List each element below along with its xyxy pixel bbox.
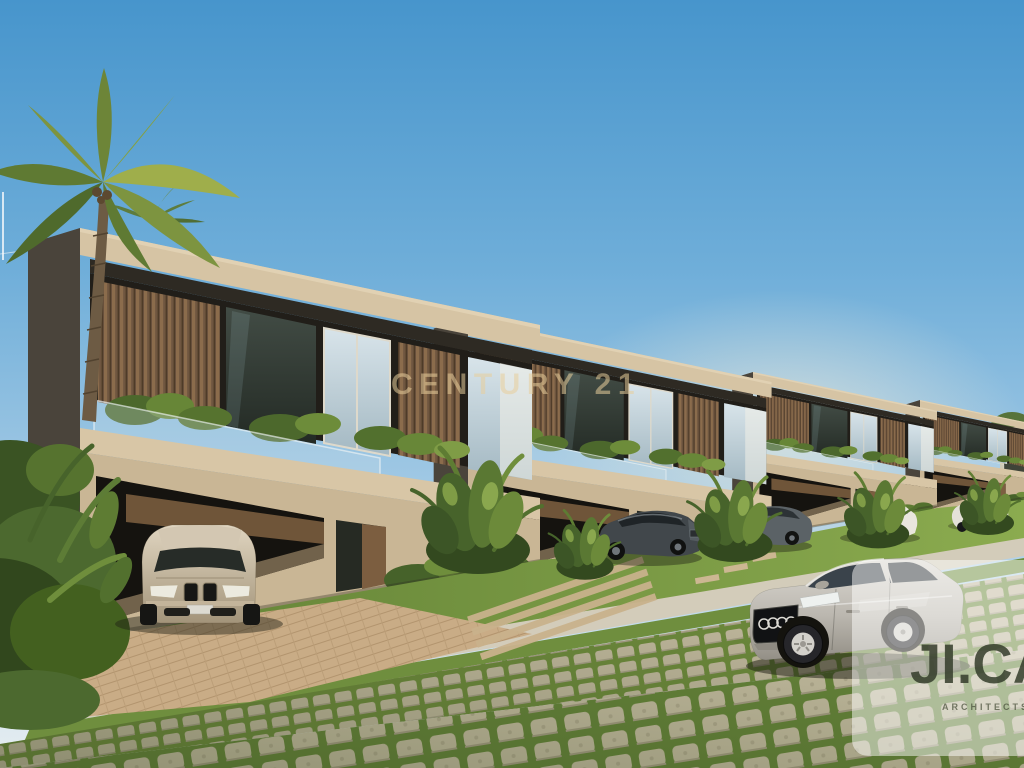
license-plate — [187, 605, 213, 614]
logo-card: JI.CA ARCHITECTS — [852, 560, 1024, 756]
architectural-render: CENTURY 21 JI.CA ARCHITECTS — [0, 0, 1024, 768]
jica-logo: JI.CA — [910, 636, 1024, 692]
jica-logo-subtitle: ARCHITECTS — [942, 702, 1024, 712]
